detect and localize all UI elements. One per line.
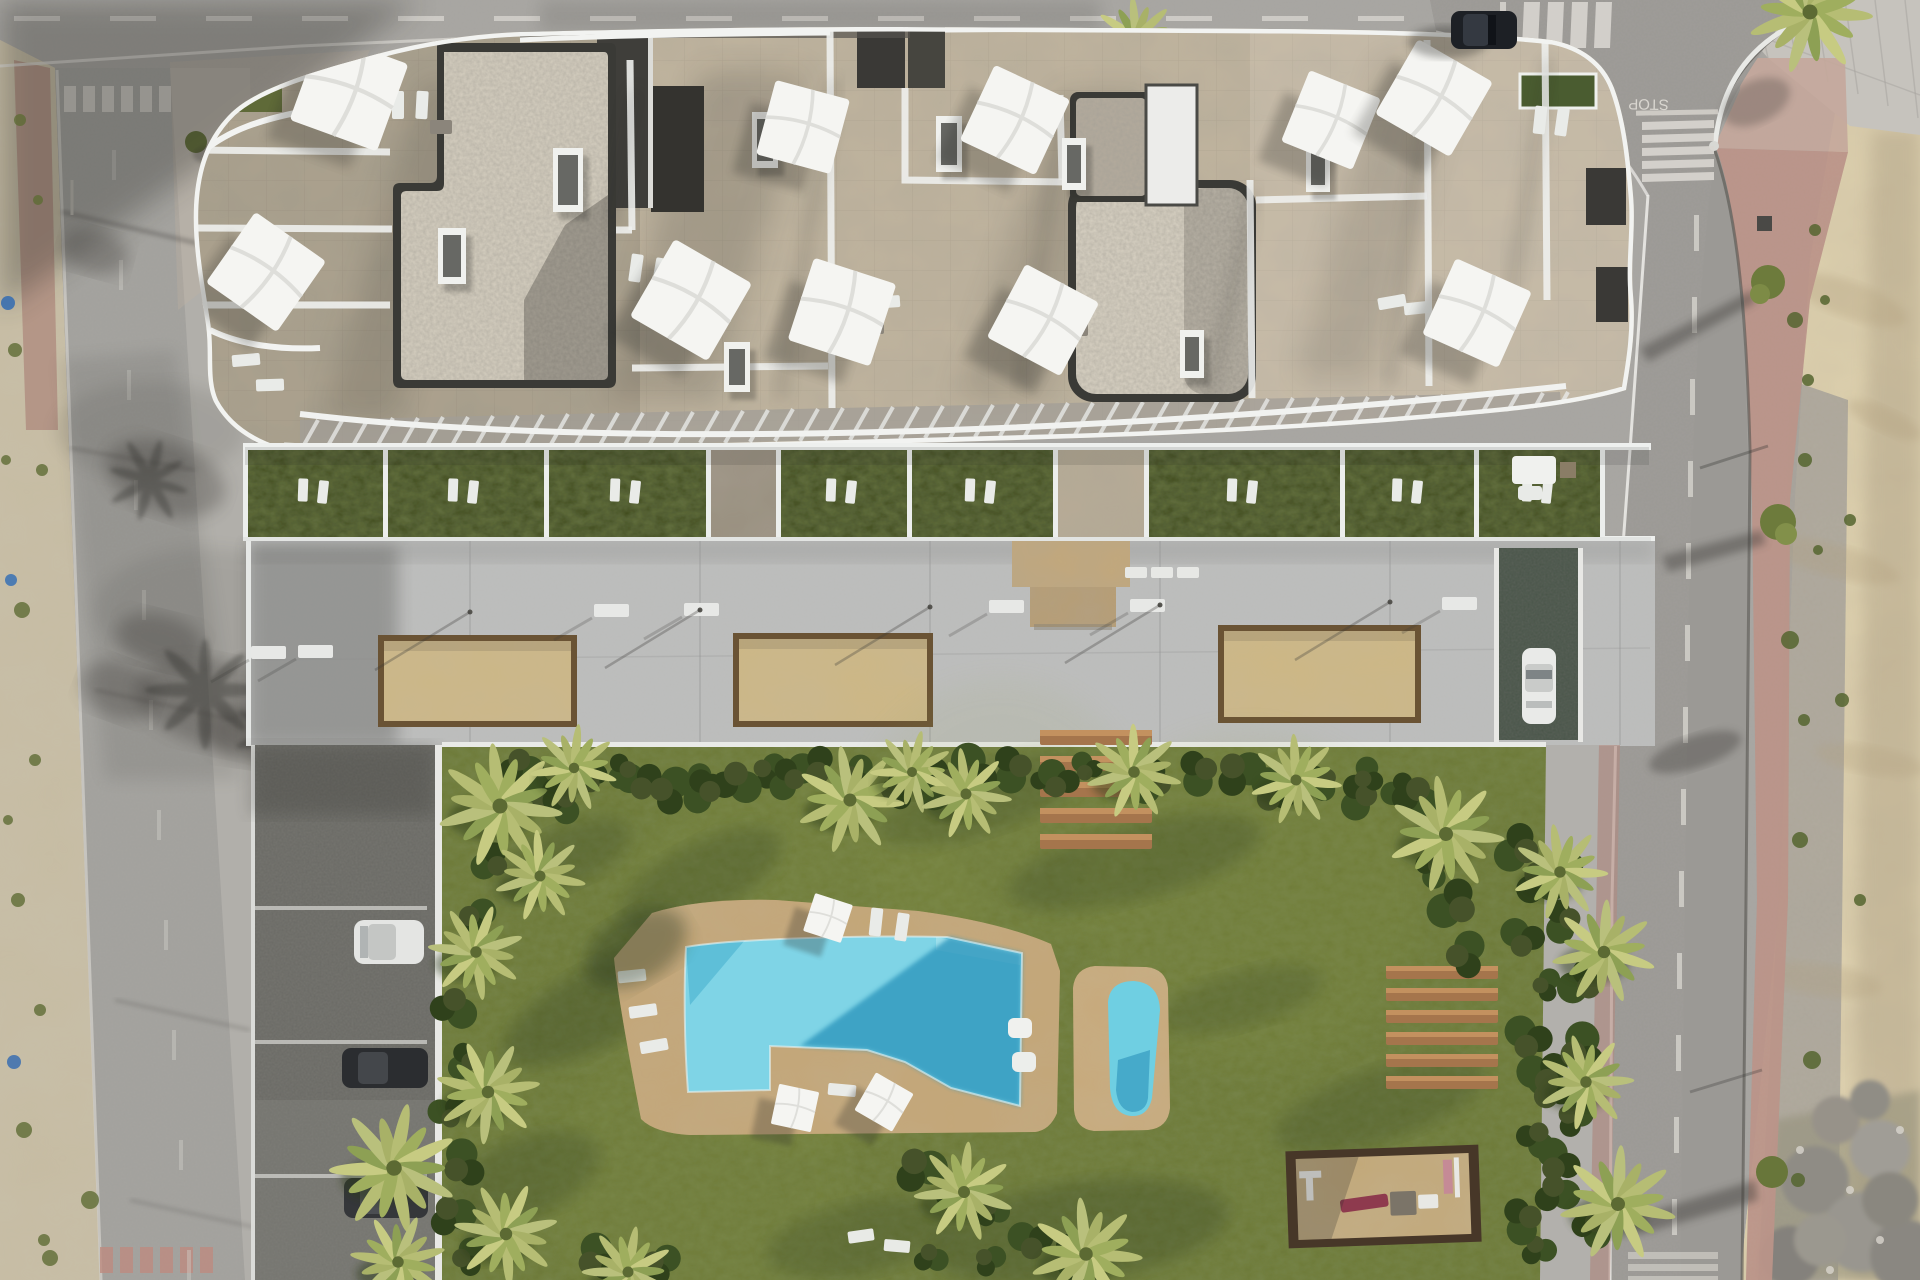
svg-text:STOP: STOP bbox=[1628, 95, 1669, 113]
